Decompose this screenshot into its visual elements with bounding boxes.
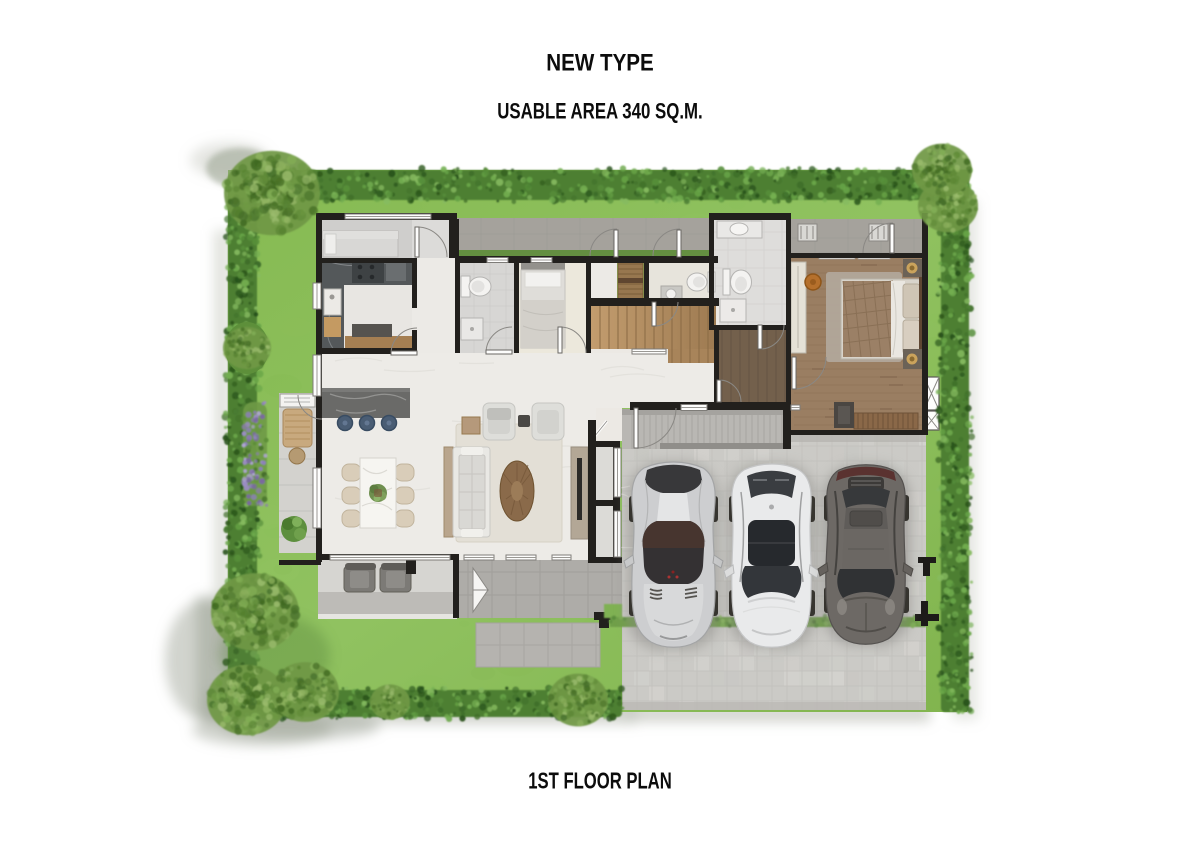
svg-text:NEW TYPE: NEW TYPE <box>546 50 654 77</box>
svg-text:USABLE AREA 340 SQ.M.: USABLE AREA 340 SQ.M. <box>497 98 703 123</box>
svg-text:1ST FLOOR PLAN: 1ST FLOOR PLAN <box>528 768 672 794</box>
